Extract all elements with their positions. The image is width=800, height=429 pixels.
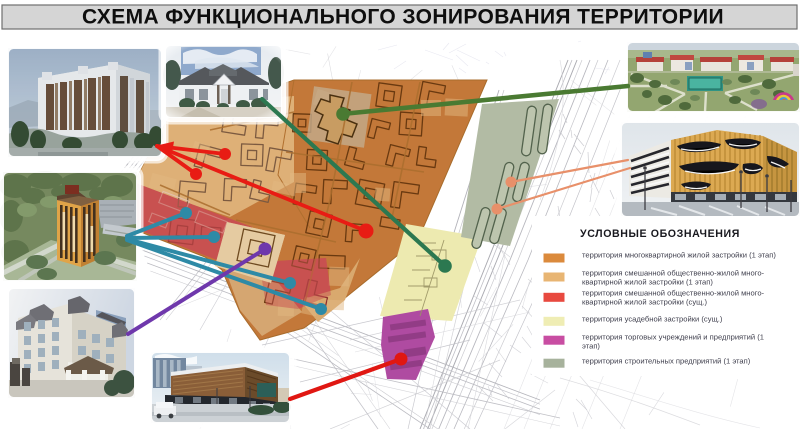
svg-text:территория смешанной обществен: территория смешанной общественно-жилой м…: [582, 269, 765, 278]
svg-text:этап): этап): [582, 342, 600, 351]
svg-text:территория смешанной обществен: территория смешанной общественно-жилой м…: [582, 289, 765, 298]
svg-text:УСЛОВНЫЕ ОБОЗНАЧЕНИЯ: УСЛОВНЫЕ ОБОЗНАЧЕНИЯ: [580, 228, 740, 240]
svg-text:территория строительных предпр: территория строительных предприятий (1 э…: [582, 357, 751, 366]
svg-text:СХЕМА ФУНКЦИОНАЛЬНОГО ЗОНИРОВА: СХЕМА ФУНКЦИОНАЛЬНОГО ЗОНИРОВАНИЯ ТЕРРИТ…: [82, 6, 724, 29]
svg-text:территория торговых учреждений: территория торговых учреждений и предпри…: [582, 333, 764, 342]
svg-text:территория многоквартирной жил: территория многоквартирной жилой застрой…: [582, 251, 776, 260]
svg-text:квартирной жилой застройки (су: квартирной жилой застройки (сущ.): [582, 298, 707, 307]
svg-text:квартирной жилой застройки (1: квартирной жилой застройки (1 этап): [582, 278, 713, 287]
svg-text:территория усадебной застройки: территория усадебной застройки (сущ.): [582, 315, 723, 324]
